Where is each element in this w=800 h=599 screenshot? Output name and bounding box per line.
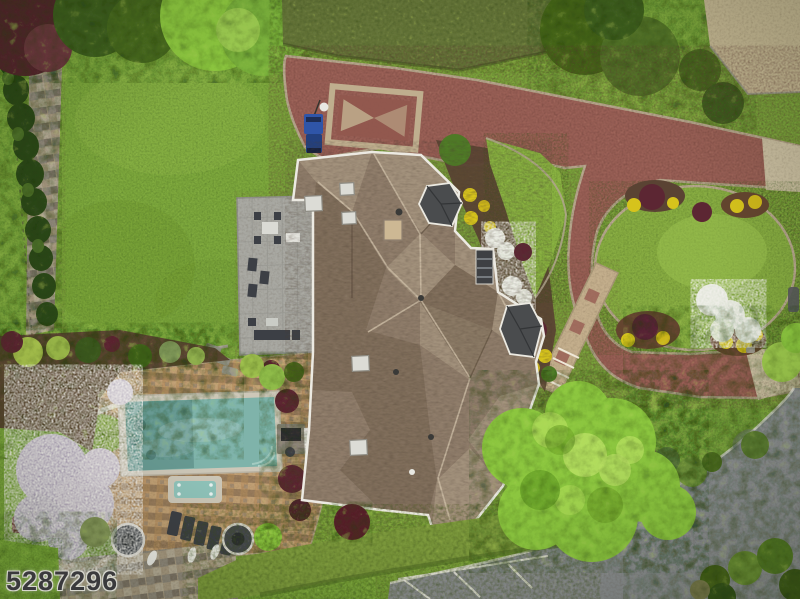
- mls-watermark: 5287296: [6, 566, 118, 597]
- vignette-overlay: [0, 0, 800, 599]
- aerial-photo: 5287296: [0, 0, 800, 599]
- aerial-photo-canvas: [0, 0, 800, 599]
